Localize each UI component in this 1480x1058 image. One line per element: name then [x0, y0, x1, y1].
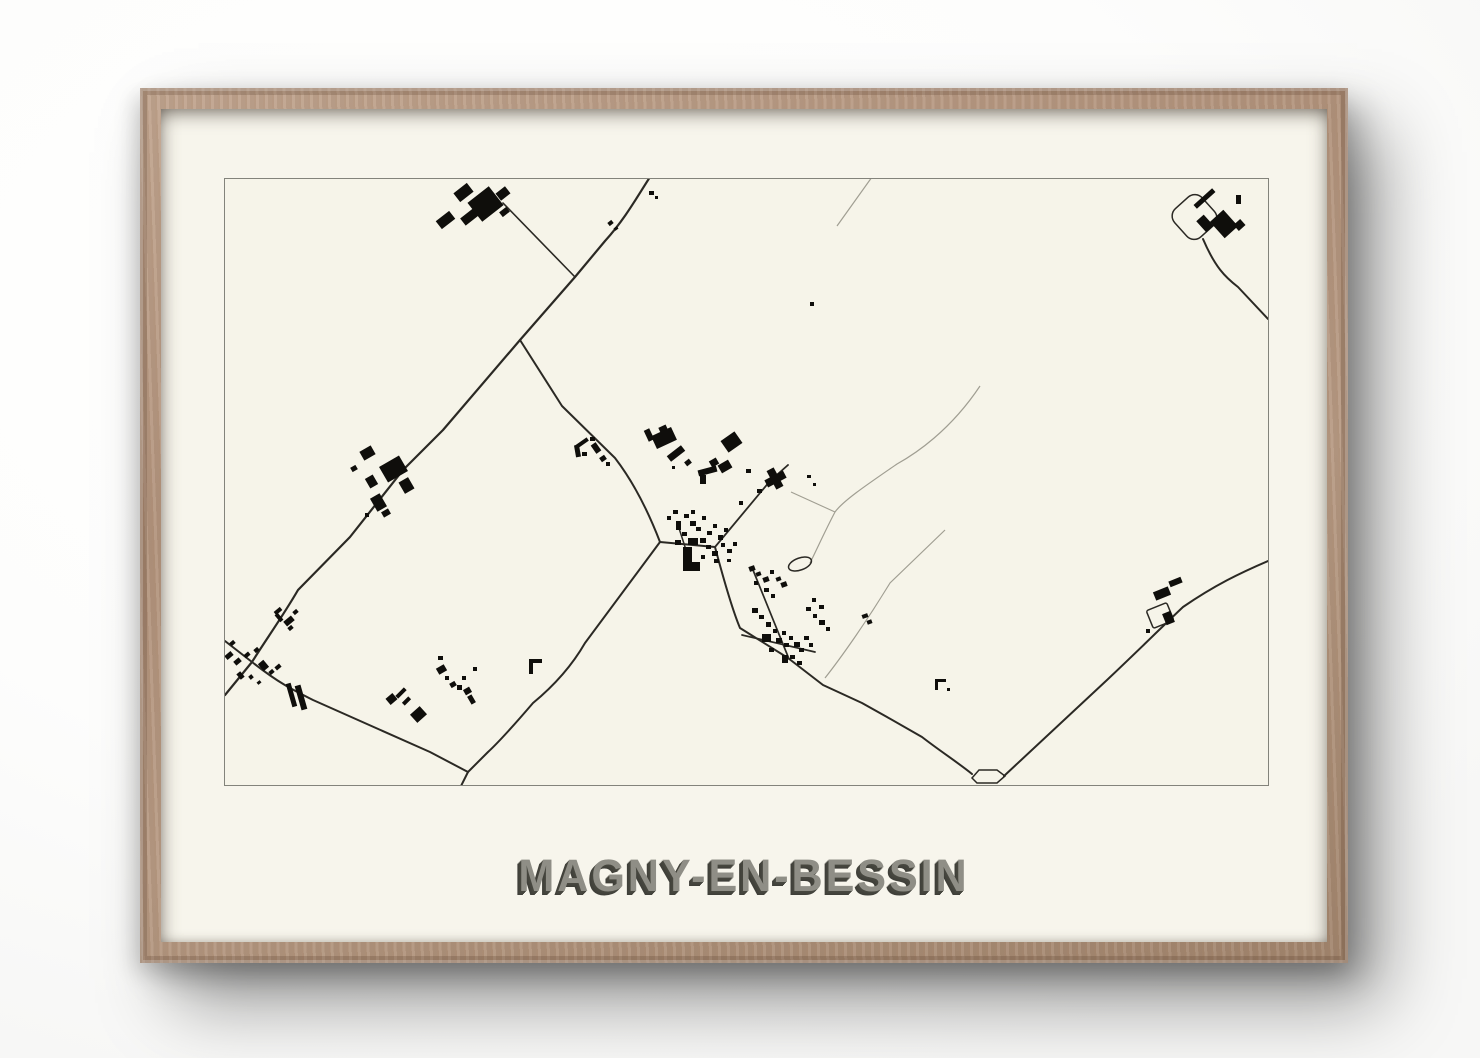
- building: [283, 615, 295, 626]
- building: [395, 687, 406, 698]
- building: [770, 570, 774, 574]
- building: [607, 220, 613, 226]
- building: [947, 688, 950, 691]
- building: [248, 674, 254, 680]
- building: [1236, 195, 1241, 204]
- building: [473, 667, 477, 671]
- building: [700, 538, 706, 543]
- building: [718, 460, 733, 474]
- building: [755, 571, 761, 576]
- building: [739, 501, 743, 505]
- building: [819, 605, 824, 609]
- building: [233, 657, 242, 665]
- building: [775, 576, 781, 581]
- building: [707, 531, 712, 535]
- building: [780, 581, 787, 588]
- building: [754, 581, 758, 585]
- building: [1153, 586, 1171, 600]
- building: [1146, 629, 1150, 633]
- building: [287, 625, 293, 631]
- building: [438, 656, 443, 660]
- building: [463, 687, 472, 696]
- building: [402, 696, 411, 705]
- building: [812, 598, 816, 602]
- building: [764, 588, 769, 592]
- building: [675, 540, 681, 545]
- building: [292, 609, 298, 615]
- building: [274, 664, 281, 671]
- mat-board: MAGNY-EN-BESSIN: [161, 109, 1327, 942]
- building: [683, 562, 700, 571]
- building: [790, 655, 795, 659]
- building: [398, 477, 414, 494]
- building: [379, 455, 408, 482]
- building: [684, 514, 689, 518]
- building: [1162, 611, 1175, 625]
- building: [813, 614, 817, 618]
- building: [385, 693, 397, 705]
- building: [436, 211, 456, 229]
- road: [1203, 239, 1268, 319]
- building: [529, 663, 533, 674]
- building: [436, 664, 447, 675]
- building: [752, 608, 758, 613]
- road: [468, 542, 660, 772]
- junction-loop: [972, 770, 1005, 783]
- building: [769, 648, 774, 652]
- building: [866, 619, 872, 624]
- building: [712, 551, 718, 556]
- building: [651, 427, 677, 449]
- building: [696, 527, 701, 531]
- building: [935, 682, 938, 690]
- building: [762, 634, 771, 642]
- building: [773, 629, 777, 633]
- building: [445, 676, 449, 680]
- building: [766, 622, 771, 627]
- building: [582, 452, 587, 456]
- building: [462, 676, 466, 680]
- building: [813, 483, 816, 486]
- building: [381, 508, 391, 517]
- building: [804, 636, 809, 640]
- building: [457, 685, 462, 690]
- building: [748, 565, 755, 572]
- building: [799, 648, 804, 652]
- road: [503, 203, 575, 277]
- building: [724, 528, 728, 532]
- building: [782, 655, 788, 663]
- building: [225, 651, 234, 660]
- building: [701, 555, 705, 559]
- building: [698, 466, 718, 477]
- building: [667, 445, 685, 462]
- building: [721, 431, 743, 452]
- building: [467, 694, 476, 704]
- building: [700, 475, 706, 484]
- map-print: [224, 178, 1269, 786]
- building: [806, 607, 811, 611]
- building: [590, 437, 595, 441]
- building: [682, 532, 687, 536]
- building: [1168, 577, 1182, 587]
- building: [935, 679, 946, 682]
- building: [746, 469, 751, 473]
- building: [702, 516, 706, 520]
- building-outline: [1168, 191, 1221, 244]
- building: [727, 549, 732, 553]
- building: [684, 459, 692, 467]
- building: [606, 462, 610, 466]
- building: [258, 660, 269, 671]
- building: [690, 521, 696, 526]
- building: [810, 302, 814, 306]
- building: [784, 643, 789, 647]
- building: [453, 183, 473, 202]
- building: [819, 620, 825, 625]
- map-svg: [225, 179, 1268, 785]
- wall-background: MAGNY-EN-BESSIN: [0, 0, 1480, 1058]
- building: [713, 524, 717, 528]
- road: [1004, 561, 1268, 776]
- field-track: [825, 530, 945, 678]
- building: [691, 510, 695, 514]
- field-track: [837, 179, 872, 226]
- building: [706, 545, 711, 549]
- building: [789, 636, 793, 640]
- building: [365, 513, 369, 517]
- building: [807, 475, 811, 478]
- building: [1210, 210, 1238, 238]
- building: [410, 706, 427, 723]
- building: [733, 542, 737, 546]
- building: [718, 535, 723, 540]
- building: [762, 576, 769, 583]
- building: [667, 516, 671, 520]
- building: [809, 643, 813, 647]
- field-track: [810, 386, 980, 563]
- building: [1233, 219, 1245, 231]
- building: [676, 521, 681, 530]
- courtyard-loop: [787, 554, 814, 573]
- building: [727, 559, 731, 562]
- building: [782, 631, 786, 635]
- building: [529, 659, 542, 663]
- building: [714, 559, 719, 563]
- building: [771, 594, 775, 598]
- building: [350, 465, 358, 472]
- building: [655, 196, 658, 199]
- building: [794, 642, 800, 647]
- building: [365, 474, 378, 488]
- building: [257, 680, 262, 685]
- building: [757, 489, 762, 493]
- building: [673, 510, 678, 514]
- building: [672, 466, 675, 469]
- building: [1196, 215, 1213, 233]
- building: [797, 661, 802, 665]
- building: [295, 685, 308, 711]
- building: [709, 457, 719, 467]
- building: [826, 627, 830, 631]
- building: [1194, 188, 1216, 208]
- building: [683, 547, 692, 562]
- building: [599, 455, 607, 463]
- building: [721, 543, 725, 547]
- building: [449, 681, 457, 688]
- building: [688, 538, 698, 545]
- picture-frame: MAGNY-EN-BESSIN: [140, 88, 1348, 963]
- building: [759, 615, 764, 619]
- building: [776, 638, 782, 643]
- field-track: [791, 492, 835, 512]
- building: [359, 445, 375, 460]
- road: [660, 542, 972, 774]
- building: [649, 191, 654, 195]
- poster-title: MAGNY-EN-BESSIN: [184, 850, 1303, 902]
